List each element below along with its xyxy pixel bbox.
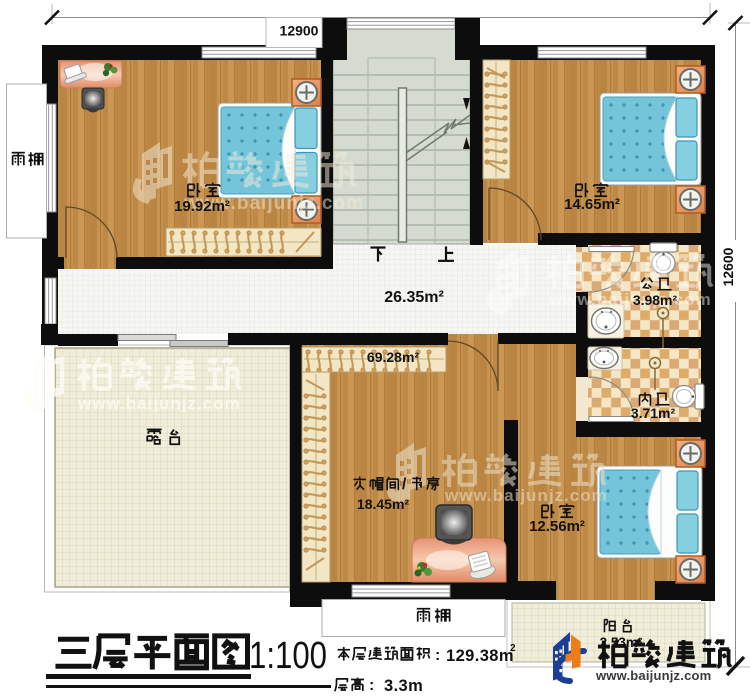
- svg-text:18.45m²: 18.45m²: [357, 496, 409, 512]
- svg-text:2: 2: [510, 643, 516, 654]
- svg-text:www.baijunjz.com: www.baijunjz.com: [595, 668, 711, 683]
- svg-text:www.baijunjz.com: www.baijunjz.com: [444, 486, 608, 505]
- svg-text:12.56m²: 12.56m²: [529, 518, 585, 535]
- svg-text:www.baijunjz.com: www.baijunjz.com: [77, 394, 241, 413]
- svg-text:19.92m²: 19.92m²: [174, 198, 230, 215]
- svg-text:/: /: [402, 476, 407, 493]
- svg-text::: :: [435, 647, 440, 664]
- svg-text:69.28m²: 69.28m²: [367, 349, 419, 365]
- svg-text::: :: [369, 677, 374, 694]
- svg-text:129.38m: 129.38m: [446, 647, 514, 665]
- svg-text:3.3m: 3.3m: [384, 677, 423, 695]
- svg-text:26.35m²: 26.35m²: [384, 289, 444, 306]
- svg-text:1:100: 1:100: [249, 635, 327, 677]
- svg-text:12600: 12600: [720, 247, 736, 286]
- svg-text:www.baijunjz.com: www.baijunjz.com: [548, 290, 712, 309]
- svg-text:12900: 12900: [280, 23, 319, 39]
- svg-text:3.71m²: 3.71m²: [631, 405, 676, 421]
- svg-text:3.98m²: 3.98m²: [633, 292, 678, 308]
- svg-text:14.65m²: 14.65m²: [564, 196, 620, 213]
